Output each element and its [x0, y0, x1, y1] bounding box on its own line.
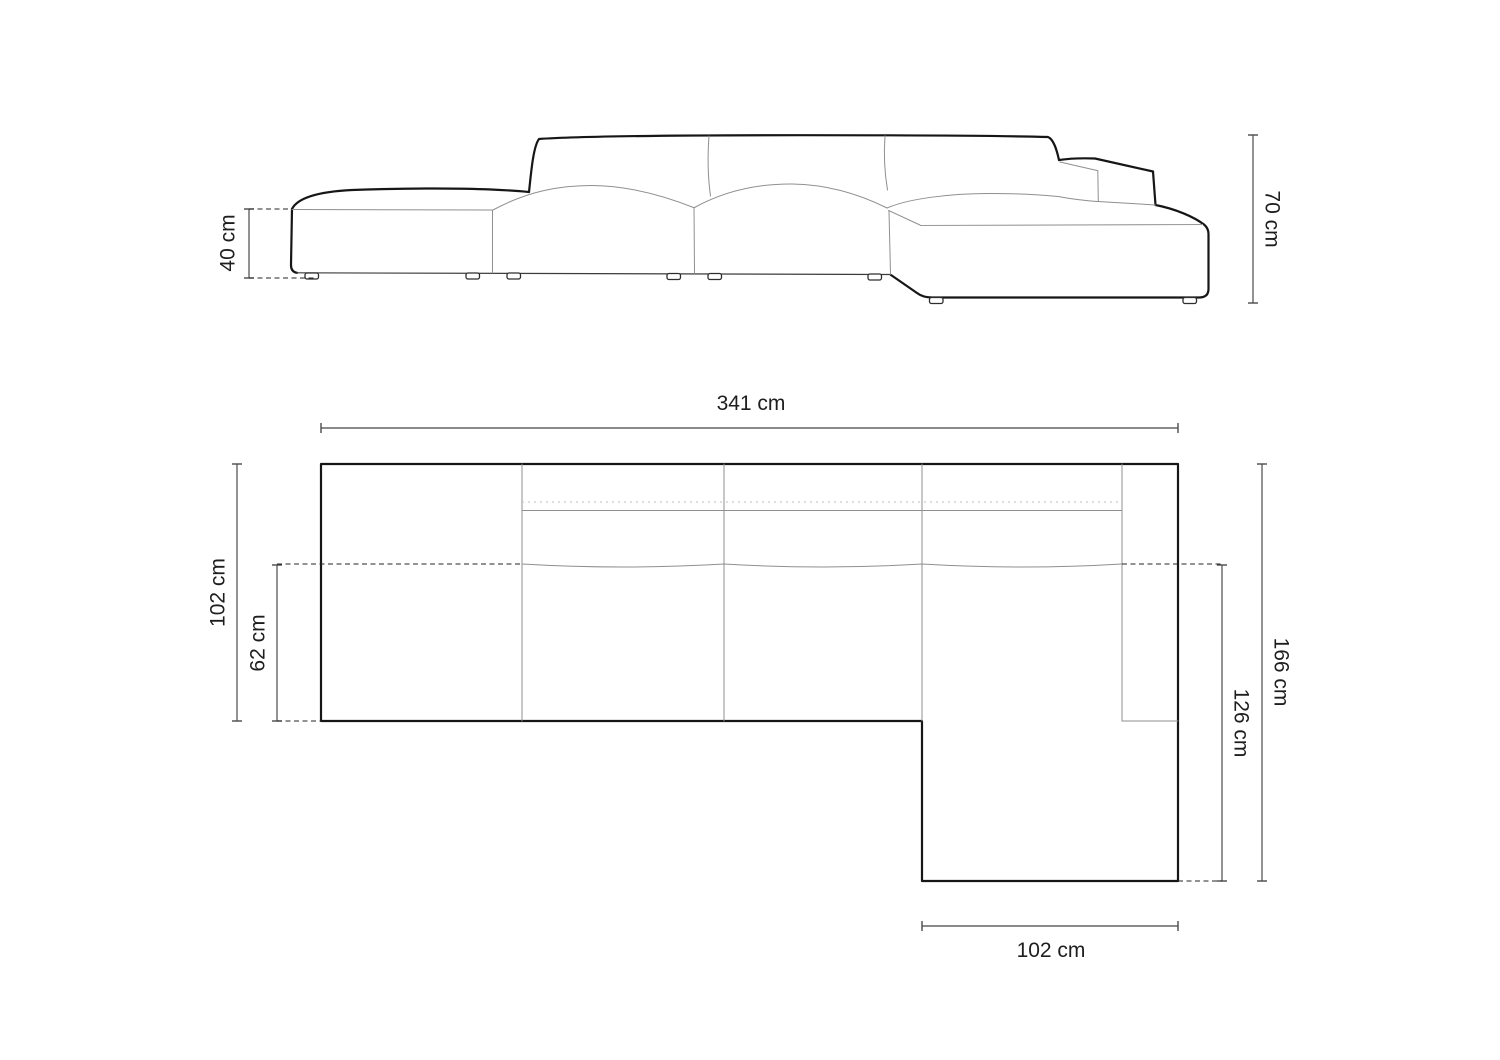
sofa-left-edge	[291, 209, 297, 273]
sofa-foot	[667, 274, 681, 280]
front-dimension-total-height: 70 cm	[1248, 135, 1284, 303]
front-sofa-drawing	[291, 135, 1209, 303]
armrest-inner-top-edge	[1060, 162, 1097, 171]
plan-outline	[321, 464, 1178, 881]
backrest-division-2	[884, 136, 887, 190]
sofa-dimension-drawing: 40 cm 70 cm	[0, 0, 1500, 1060]
chaise-width-label: 102 cm	[1017, 939, 1086, 962]
body-depth-label: 102 cm	[207, 558, 230, 627]
front-view: 40 cm 70 cm	[217, 135, 1284, 304]
plan-dimension-chaise-width: 102 cm	[922, 921, 1178, 962]
sofa-foot	[868, 274, 882, 280]
chaise-front-top-edge	[920, 225, 1203, 226]
total-height-label: 70 cm	[1261, 190, 1284, 247]
front-dimension-seat-height: 40 cm	[217, 209, 315, 278]
plan-seat-front-line	[522, 564, 1122, 567]
plan-dimension-seat-depth: 62 cm	[247, 564, 523, 721]
armrest-right-edge	[1153, 172, 1156, 206]
chaise-left-crease	[889, 211, 921, 226]
seat-height-label: 40 cm	[217, 214, 240, 271]
sofa-foot	[708, 274, 722, 280]
open-end-top-edge	[292, 188, 529, 209]
seat-cushion-arc-2	[695, 184, 888, 208]
sofa-foot	[466, 273, 480, 279]
plan-sofa-drawing	[321, 464, 1178, 881]
plan-dimension-chaise-depth: 126 cm	[1122, 564, 1253, 881]
base-bottom-edge	[297, 273, 891, 275]
chaise-foot	[930, 298, 944, 304]
backrest-outline	[529, 135, 1059, 192]
backrest-division-1	[708, 136, 710, 196]
open-end-seat-line	[292, 210, 492, 211]
plan-dimension-body-depth: 102 cm	[207, 464, 243, 721]
diagram-canvas: 40 cm 70 cm	[0, 0, 1500, 1060]
module-3-right-edge	[889, 211, 891, 274]
chaise-foot	[1183, 298, 1197, 304]
chaise-depth-label: 126 cm	[1230, 689, 1253, 758]
plan-dimension-total-width: 341 cm	[321, 392, 1178, 433]
sofa-foot	[507, 273, 521, 279]
seat-cushion-arc-1	[493, 186, 694, 211]
total-width-label: 341 cm	[717, 392, 786, 415]
total-depth-label: 166 cm	[1270, 638, 1293, 707]
plan-view: 341 cm 102 cm 62 cm 166 cm	[207, 392, 1293, 962]
seat-depth-label: 62 cm	[247, 614, 270, 671]
armrest-inner-vertical-edge	[1098, 171, 1099, 202]
chaise-seat-surface	[887, 194, 1156, 209]
module-division-2	[694, 208, 695, 274]
plan-dimension-total-depth: 166 cm	[1257, 464, 1293, 881]
chaise-outline	[891, 205, 1209, 298]
